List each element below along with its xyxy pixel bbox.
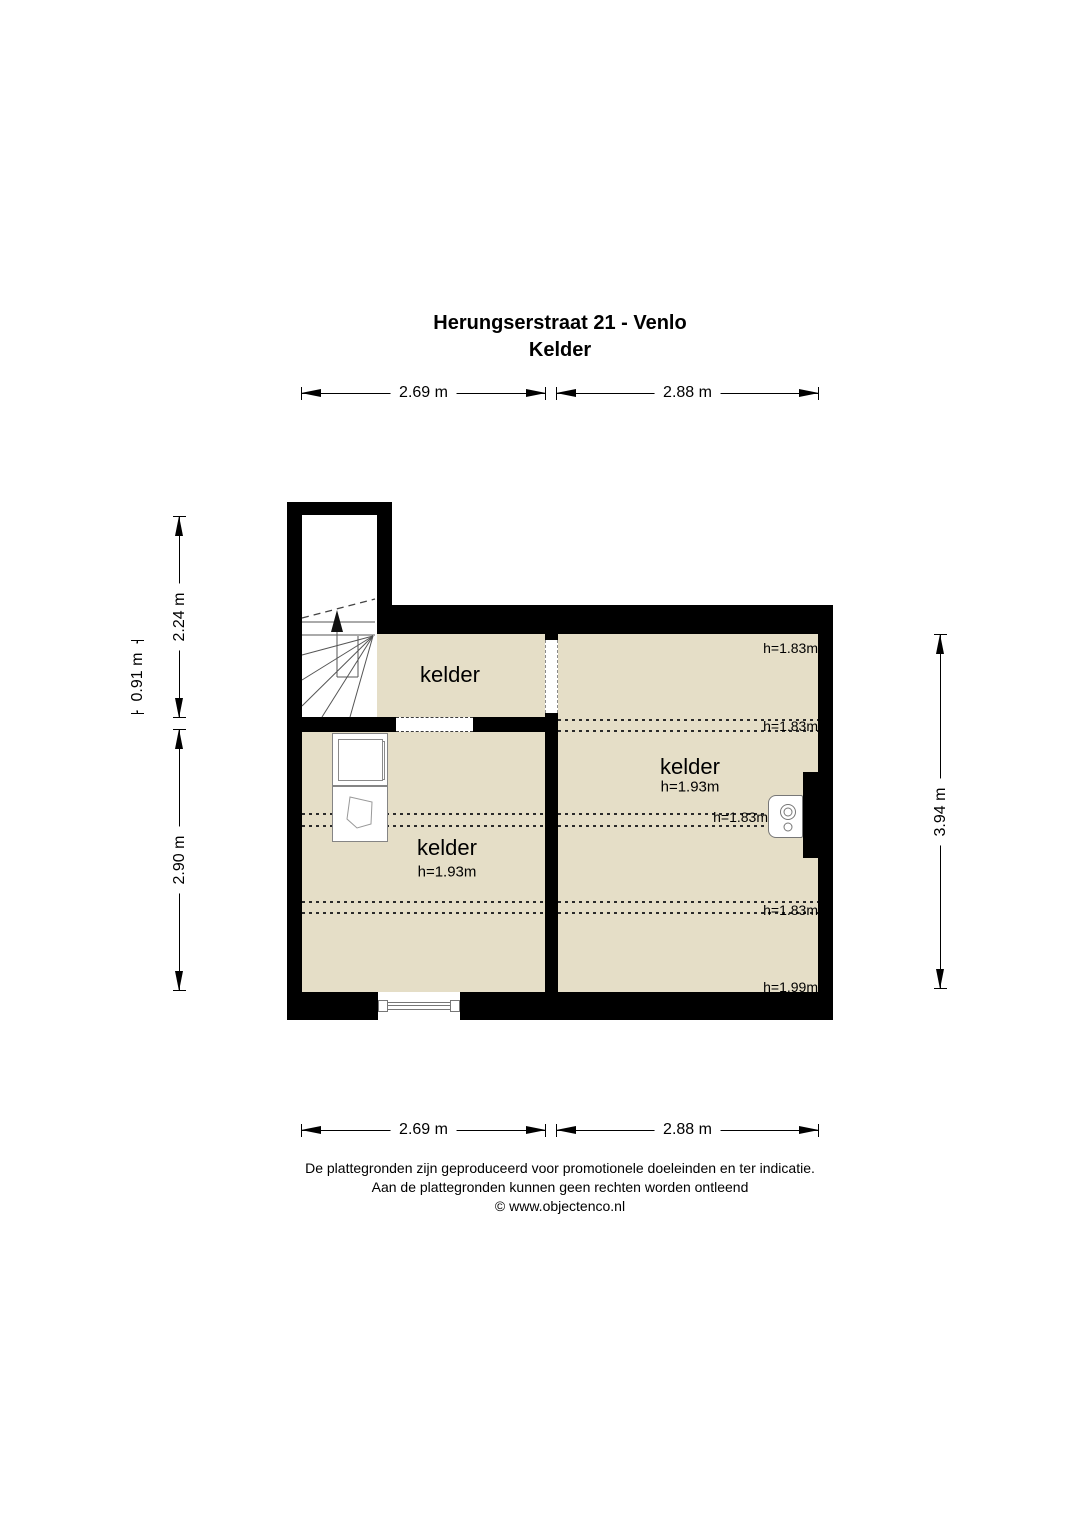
height-limit-line [558,825,803,827]
room-height-right-kelder: h=1.93m [661,779,720,796]
dim-arrow-icon [301,389,321,397]
dimension-top-right: 2.88 m [557,393,818,394]
dim-tick-icon [173,516,186,517]
height-marker: h=1.83m [713,809,768,825]
staircase-icon [300,510,394,720]
dim-tick-icon [173,729,186,730]
dimension-label: 2.69 m [390,1121,457,1139]
height-marker: h=1.99m [763,979,818,995]
dimension-label: 3.94 m [932,778,950,845]
dim-arrow-icon [526,389,546,397]
room-height-left-kelder: h=1.93m [418,864,477,881]
copyright: © www.objectenco.nl [40,1197,1080,1216]
dim-tick-icon [173,990,186,991]
dimension-top-left: 2.69 m [302,393,545,394]
dimension-bottom-right: 2.88 m [557,1130,818,1131]
dim-tick-icon [818,387,819,400]
disclaimer: De plattegronden zijn geproduceerd voor … [40,1159,1080,1216]
disclaimer-line-2: Aan de plattegronden kunnen geen rechten… [40,1178,1080,1197]
height-marker: h=1.83m [763,718,818,734]
wall-top [377,605,833,634]
passage-opening [396,717,473,732]
washing-machine-handle [382,741,385,780]
dim-tick-icon [545,1124,546,1137]
door-opening [545,640,558,713]
room-label-top-kelder: kelder [420,662,480,688]
dim-tick-icon [556,387,557,400]
wall-bottom [287,992,833,1020]
dimension-label: 2.88 m [654,384,721,402]
dim-arrow-icon [526,1126,546,1134]
dimension-left-small: 0.91 m [137,641,138,713]
height-limit-line [302,901,545,903]
height-marker: h=1.83m [763,640,818,656]
dimension-label: 2.88 m [654,1121,721,1139]
chimney-breast [803,772,818,858]
height-limit-line [302,912,545,914]
sink-fixture-icon [332,786,388,842]
dim-arrow-icon [175,729,183,749]
dimension-label: 2.90 m [171,827,189,894]
dim-tick-icon [173,717,186,718]
dim-arrow-icon [556,389,576,397]
disclaimer-line-1: De plattegronden zijn geproduceerd voor … [40,1159,1080,1178]
dim-tick-icon [545,387,546,400]
room-label-right-kelder: kelder [660,754,720,780]
dimension-label: 2.24 m [171,584,189,651]
dim-tick-icon [818,1124,819,1137]
floorplan-page: Herungserstraat 21 - Venlo Kelder 2.69 m… [0,0,1080,1527]
dim-arrow-icon [301,1126,321,1134]
boiler-icon [768,795,803,838]
window-jamb [450,1000,460,1012]
dim-tick-icon [301,1124,302,1137]
dimension-bottom-left: 2.69 m [302,1130,545,1131]
dim-arrow-icon [799,1126,819,1134]
dimension-label: 0.91 m [129,644,147,711]
dim-arrow-icon [175,516,183,536]
wall-right [818,605,833,1020]
title-address: Herungserstraat 21 - Venlo [40,310,1080,337]
dim-arrow-icon [936,634,944,654]
room-label-left-kelder: kelder [417,835,477,861]
dim-arrow-icon [175,971,183,991]
dim-tick-icon [131,713,144,714]
washing-machine-icon [332,733,388,786]
dim-tick-icon [934,634,947,635]
dim-tick-icon [934,988,947,989]
dim-arrow-icon [175,698,183,718]
dimension-right: 3.94 m [940,635,941,988]
dim-arrow-icon [936,969,944,989]
height-marker: h=1.83m [763,902,818,918]
window-icon [387,1002,451,1010]
dim-arrow-icon [799,389,819,397]
title-floor-name: Kelder [40,337,1080,364]
washing-machine-door [338,739,383,781]
dim-arrow-icon [556,1126,576,1134]
page-title: Herungserstraat 21 - Venlo Kelder [40,310,1080,364]
window-glazing-line [388,1005,450,1006]
dim-tick-icon [131,640,144,641]
dim-tick-icon [301,387,302,400]
dimension-left-lower: 2.90 m [179,730,180,990]
dim-tick-icon [556,1124,557,1137]
dimension-left-upper: 2.24 m [179,517,180,717]
dimension-label: 2.69 m [390,384,457,402]
